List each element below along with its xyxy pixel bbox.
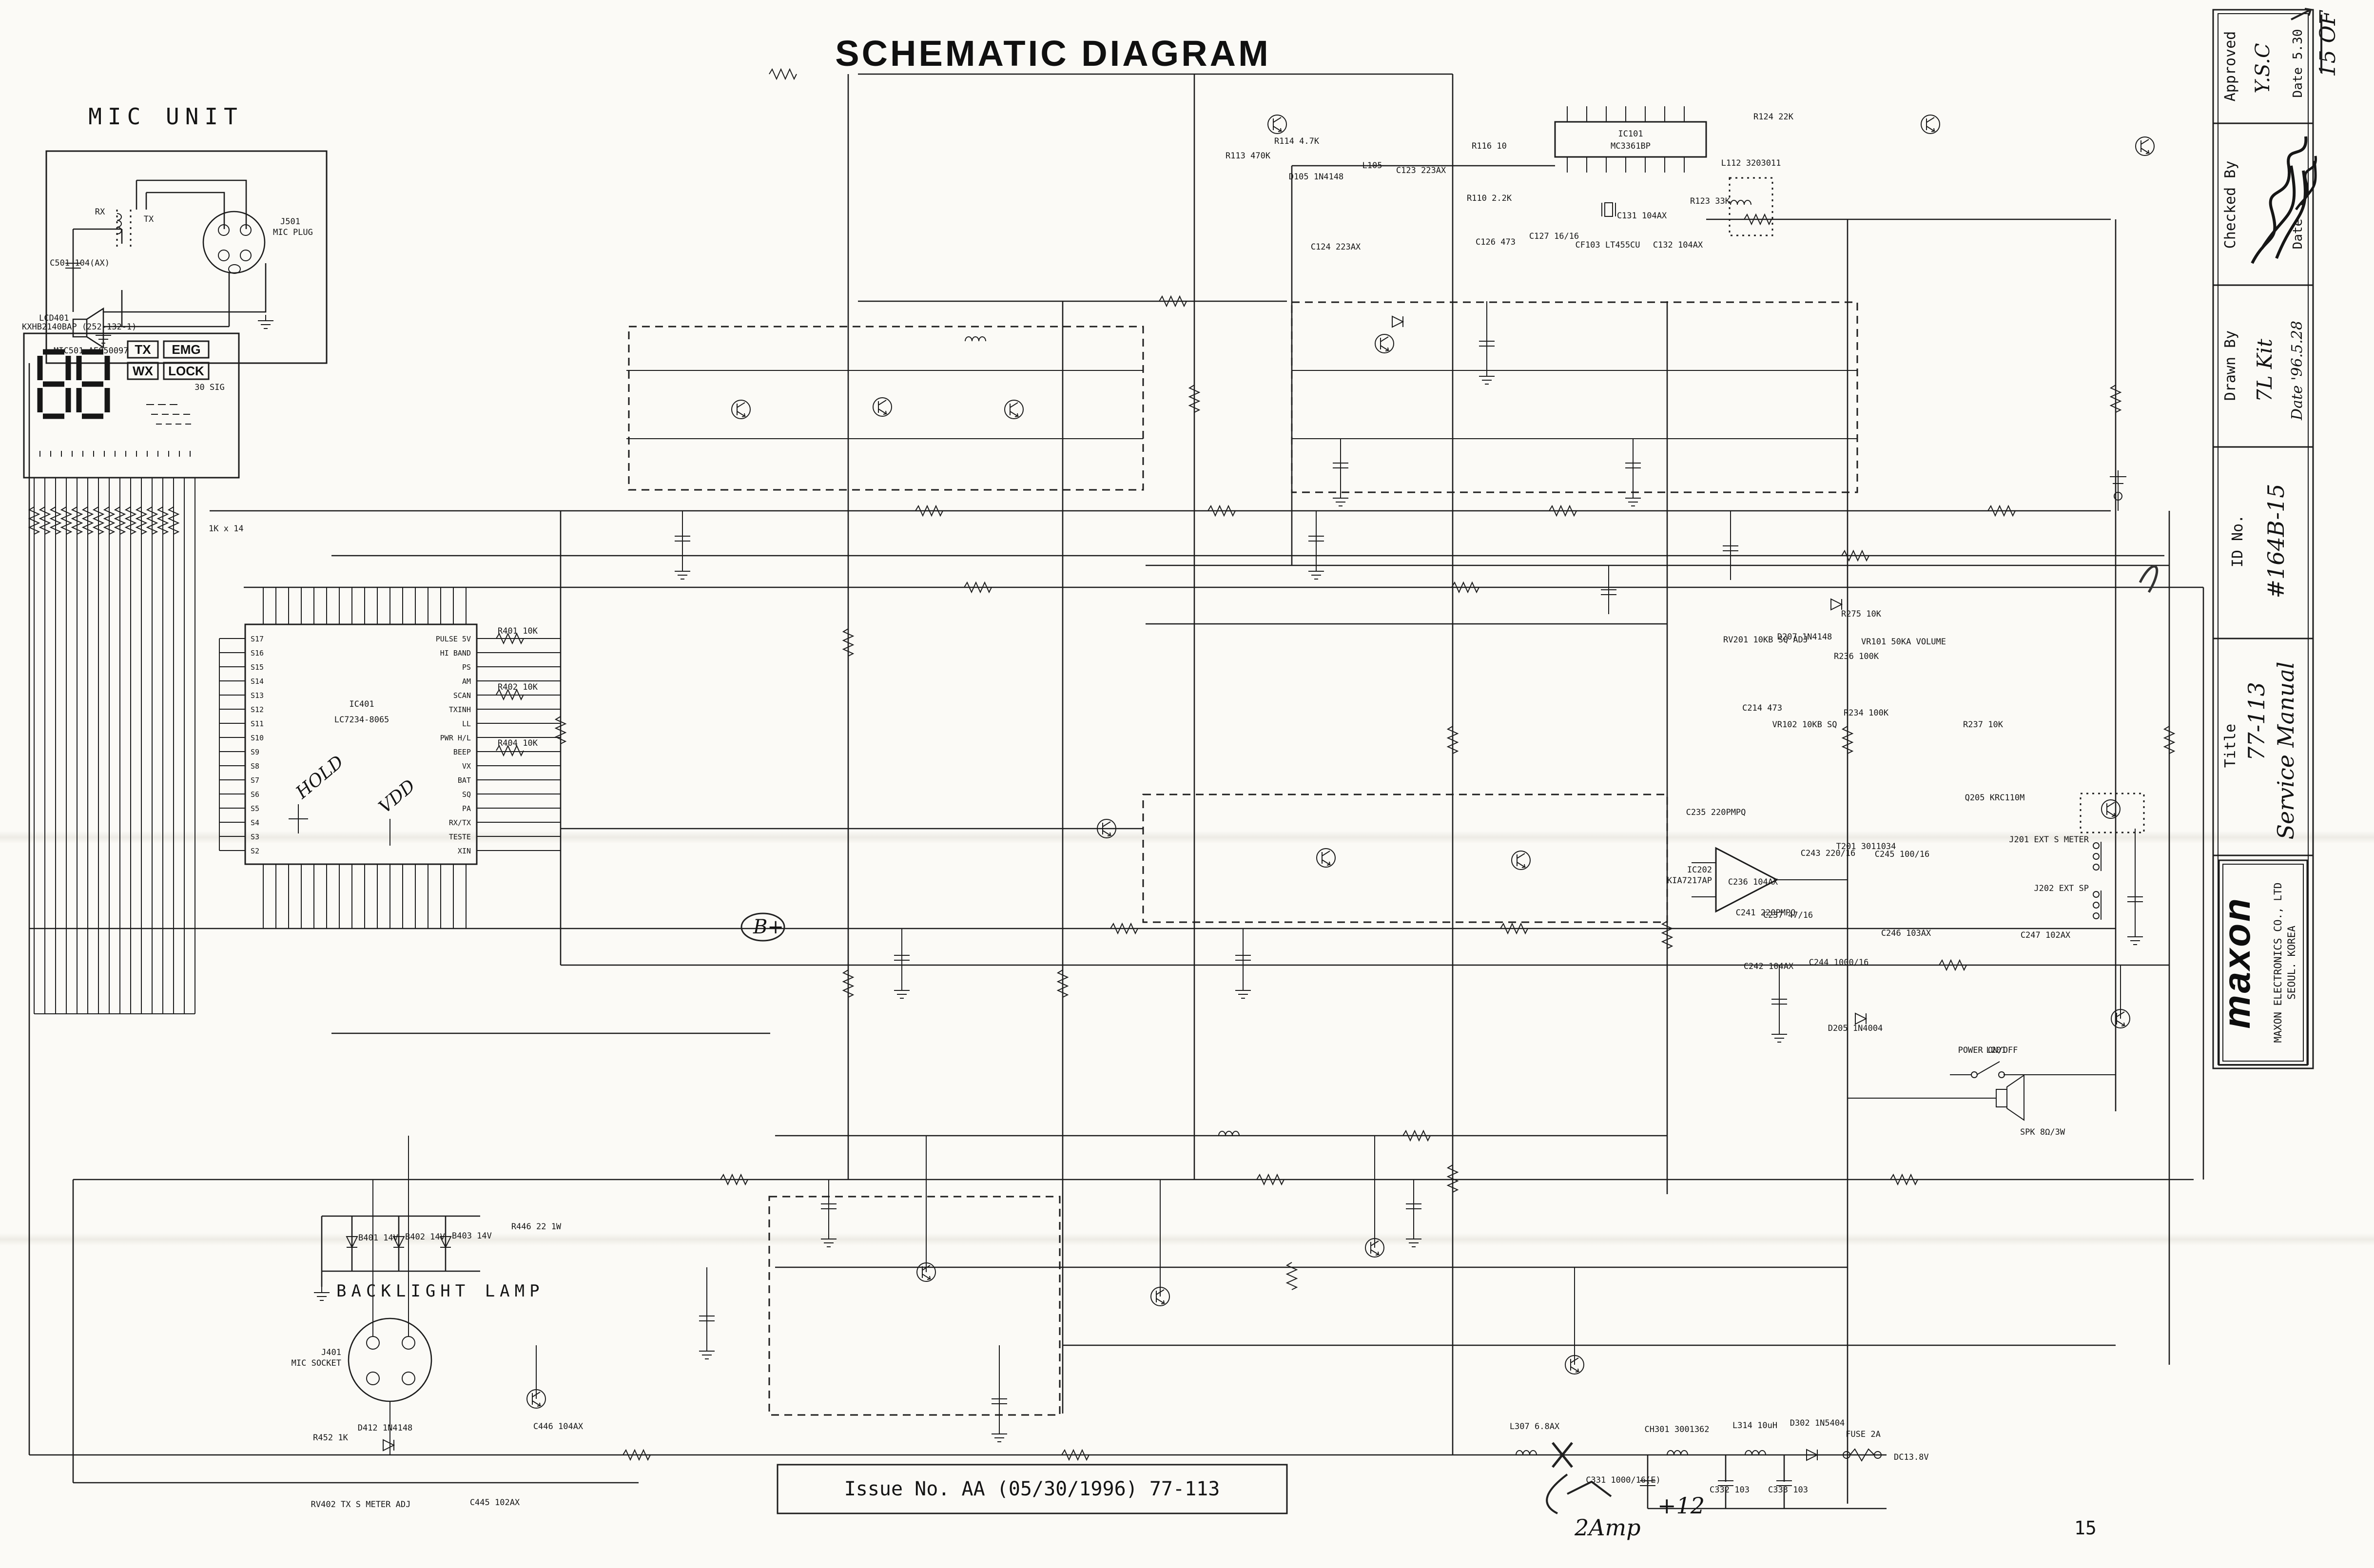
part-label: C246 103AX [1881,929,1931,938]
cpu-right-pin-labels: PULSE 5VHI BAND PSAM SCANTXINH LLPWR H/L… [436,635,471,855]
svg-text:S14: S14 [251,677,264,686]
cpu-ic401: IC401 LC7234-8065 S17S16 S15S14 S13S12 S… [245,624,477,864]
company-city: SEOUL. KOREA [2286,926,2297,1000]
part-label: R116 10 [1472,141,1507,151]
issue-label: Issue No. AA (05/30/1996) 77-113 [844,1478,1220,1500]
part-label: R234 100K [1844,708,1889,718]
svg-text:BEEP: BEEP [453,748,471,756]
svg-text:S5: S5 [251,804,259,813]
id-value: #164B-15 [2263,484,2289,598]
svg-text:S10: S10 [251,734,264,742]
doc-title-line2: Service Manual [2273,662,2299,840]
ic101: IC101 MC3361BP [1555,106,1706,173]
lamp2-label: B402 14V [405,1232,445,1242]
handwritten-2amp: 2Amp [1574,1514,1641,1541]
svg-text:VX: VX [462,762,471,771]
part-label: L112 3203011 [1721,158,1781,168]
schematic-page: SCHEMATIC DIAGRAM MIC UNIT C501 104(AX) … [0,0,2374,1568]
cpu-ref: IC401 [349,699,374,709]
checked-label: Checked By [2222,161,2239,249]
part-label: J201 EXT S METER [2009,835,2089,845]
approved-date: Date 5.30 [2291,29,2305,98]
part-label: C236 104AX [1728,877,1778,887]
part-label: D205 1N4004 [1828,1024,1883,1033]
svg-text:S8: S8 [251,762,259,771]
schematic-canvas: SCHEMATIC DIAGRAM MIC UNIT C501 104(AX) … [0,0,2374,1568]
svg-text:PWR H/L: PWR H/L [440,734,471,742]
approved-signature: Y.S.C [2252,43,2274,93]
lcd-resistor-bank-label: 1K x 14 [209,524,244,534]
ic202-part: KIA7217AP [1667,876,1712,886]
part-label: C235 220PMPQ [1686,808,1746,817]
svg-text:HI BAND: HI BAND [440,649,471,658]
part-label: CF103 LT455CU [1575,240,1640,250]
part-label: POWER ON/OFF [1958,1045,2018,1055]
part-label: VR101 50KA VOLUME [1861,637,1946,647]
part-label: C445 102AX [470,1498,520,1508]
handwritten-bplus: B+ [741,913,784,941]
doc-title-label: Title [2222,724,2239,768]
cpu-left-pin-labels: S17S16 S15S14 S13S12 S11S10 S9S8 S7S6 S5… [251,635,264,855]
checked-date: Date [2291,219,2305,250]
part-label: R124 22K [1753,112,1794,122]
mic-socket-label: MIC SOCKET [292,1358,341,1368]
part-label: D302 1N5404 [1790,1418,1845,1428]
backlight-section: B401 14V B402 14V B403 14V BACKLIGHT LAM… [292,1136,545,1455]
svg-text:BAT: BAT [458,776,471,785]
svg-text:LL: LL [462,719,471,728]
svg-text:PA: PA [462,804,471,813]
cell-drawn: Drawn By 7L Kit Date '96.5.28 [2222,321,2306,421]
part-label: C131 104AX [1617,211,1667,221]
part-label: C247 102AX [2021,930,2071,940]
part-label: R237 10K [1963,720,2004,730]
part-label: RV402 TX S METER ADJ [311,1500,411,1510]
cell-title: Title 77-113 Service Manual [2222,662,2299,840]
handwritten-vdd: VDD [375,776,419,817]
part-label: R123 33K [1690,196,1731,206]
part-label: VR102 10KB SQ [1772,720,1837,730]
lcd-digit [40,352,68,416]
company-logo: maxon [2215,896,2258,1028]
lcd-badge-wx: WX [133,364,154,378]
svg-text:S3: S3 [251,832,259,841]
svg-text:AM: AM [462,677,471,686]
drawn-label: Drawn By [2222,330,2239,401]
part-label: CH301 3001362 [1644,1425,1709,1434]
handwritten-plus12: +12 [1657,1492,1705,1519]
svg-text:S4: S4 [251,818,259,827]
handwritten-hold: HOLD [292,752,348,803]
part-label: C331 1000/16(E) [1586,1475,1661,1485]
part-label: C127 16/16 [1529,232,1579,241]
part-label: R110 2.2K [1467,194,1512,203]
title-block: Approved Y.S.C Date 5.30 Checked By Date… [2213,9,2340,1068]
part-label: J202 EXT SP [2034,884,2089,893]
svg-text:S12: S12 [251,705,264,714]
drawn-date: Date '96.5.28 [2289,321,2306,421]
part-label: R401 10K [498,626,538,636]
cell-checked: Checked By Date [2222,136,2316,263]
part-label: C244 1000/16 [1809,958,1869,968]
part-label: C333 103 [1768,1485,1808,1495]
part-label: C242 104AX [1744,962,1794,971]
ic101-part: MC3361BP [1611,141,1651,151]
mic-socket-ref: J401 [321,1348,341,1357]
svg-text:TESTE: TESTE [449,832,471,841]
part-label: L307 6.8AX [1510,1422,1560,1432]
mic-c501-label: C501 104(AX) [50,258,110,268]
part-label: R446 22 1W [511,1222,562,1232]
part-label: FUSE 2A [1846,1430,1881,1439]
approved-label: Approved [2222,31,2239,102]
ic202-ref: IC202 [1687,865,1712,875]
mic-tx-label: TX [144,214,154,224]
ic101-ref: IC101 [1618,129,1643,139]
power-entry: 2Amp +12 [1516,1443,1887,1541]
page-header: SCHEMATIC DIAGRAM [835,33,1270,74]
part-label: R402 10K [498,682,538,692]
lcd-badge-emg: EMG [172,342,200,357]
svg-text:S2: S2 [251,847,259,855]
page-title: SCHEMATIC DIAGRAM [835,33,1270,74]
part-label: C132 104AX [1653,240,1703,250]
part-labels: R113 470K R114 4.7K D105 1N4148 L105 C12… [311,112,2089,1510]
svg-text:TXINH: TXINH [449,705,471,714]
part-label: C214 473 [1742,703,1782,713]
part-label: R113 470K [1226,151,1271,161]
lcd-part: KXHB2140BAP (252-132-1) [22,322,136,332]
lcd-badge-lock: LOCK [168,364,204,378]
mic-rx-label: RX [95,207,105,217]
part-label: C123 223AX [1396,166,1446,175]
svg-text:S9: S9 [251,748,259,756]
cell-approved: Approved Y.S.C Date 5.30 [2222,9,2311,101]
backlight-label: BACKLIGHT LAMP [336,1281,545,1301]
svg-text:S17: S17 [251,635,264,643]
component-symbols [29,69,2174,1460]
svg-text:B+: B+ [753,916,784,938]
part-label: C446 104AX [533,1422,584,1432]
part-label: C332 103 [1710,1485,1750,1495]
part-label: R452 1K [313,1433,348,1443]
lamp3-label: B403 14V [452,1231,492,1241]
svg-text:S13: S13 [251,691,264,700]
part-label: R236 100K [1834,652,1879,661]
page-number: 15 [2074,1517,2097,1539]
cell-id: ID No. #164B-15 [2229,484,2289,598]
cell-company: maxon MAXON ELECTRONICS CO., LTD SEOUL. … [2215,860,2307,1065]
part-label: C241 220PMPQ [1736,908,1796,918]
part-label: C124 223AX [1311,242,1361,252]
part-label: D207 1N4148 [1777,632,1832,642]
part-label: SPK 8Ω/3W [2020,1127,2065,1137]
part-label: L105 [1362,161,1382,171]
part-label: C126 473 [1476,237,1516,247]
svg-text:RX/TX: RX/TX [449,818,471,827]
svg-text:S15: S15 [251,663,264,672]
part-label: R114 4.7K [1274,136,1320,146]
svg-text:S11: S11 [251,719,264,728]
lcd-sig: 30 SIG [195,383,224,392]
cpu-part: LC7234-8065 [334,715,389,725]
id-label: ID No. [2229,515,2246,567]
svg-text:XIN: XIN [458,847,471,855]
issue-footer: Issue No. AA (05/30/1996) 77-113 15 [778,1465,2097,1539]
part-label: Q205 KRC110M [1965,793,2025,803]
sheet-note: 15 OF [2316,10,2340,77]
doc-title-line1: 77-113 [2243,682,2270,761]
mic-unit-title: MIC UNIT [88,103,243,130]
part-label: R275 10K [1841,609,1882,619]
svg-text:SCAN: SCAN [453,691,471,700]
part-label: C245 100/16 [1875,850,1930,859]
lamp1-label: B401 14V [358,1233,398,1243]
part-label: D105 1N4148 [1289,172,1344,182]
svg-text:PULSE 5V: PULSE 5V [436,635,471,643]
svg-text:S7: S7 [251,776,259,785]
mic-plug-label: MIC PLUG [273,228,313,237]
svg-text:PS: PS [462,663,471,672]
part-label: R404 10K [498,738,538,748]
lcd-badge-tx: TX [135,342,151,357]
svg-text:SQ: SQ [462,790,471,799]
lcd-digit [79,352,107,416]
svg-text:S6: S6 [251,790,259,799]
drawn-signature: 7L Kit [2253,339,2277,402]
part-label: D412 1N4148 [358,1423,413,1433]
part-label: L314 10uH [1732,1421,1777,1431]
mic-plug-ref: J501 [280,217,300,227]
company-name: MAXON ELECTRONICS CO., LTD [2272,883,2284,1043]
lcd-ref: LCD401 [39,313,69,323]
part-label: DC13.8V [1894,1452,1929,1462]
module-boxes [629,178,2144,1415]
svg-text:S16: S16 [251,649,264,658]
